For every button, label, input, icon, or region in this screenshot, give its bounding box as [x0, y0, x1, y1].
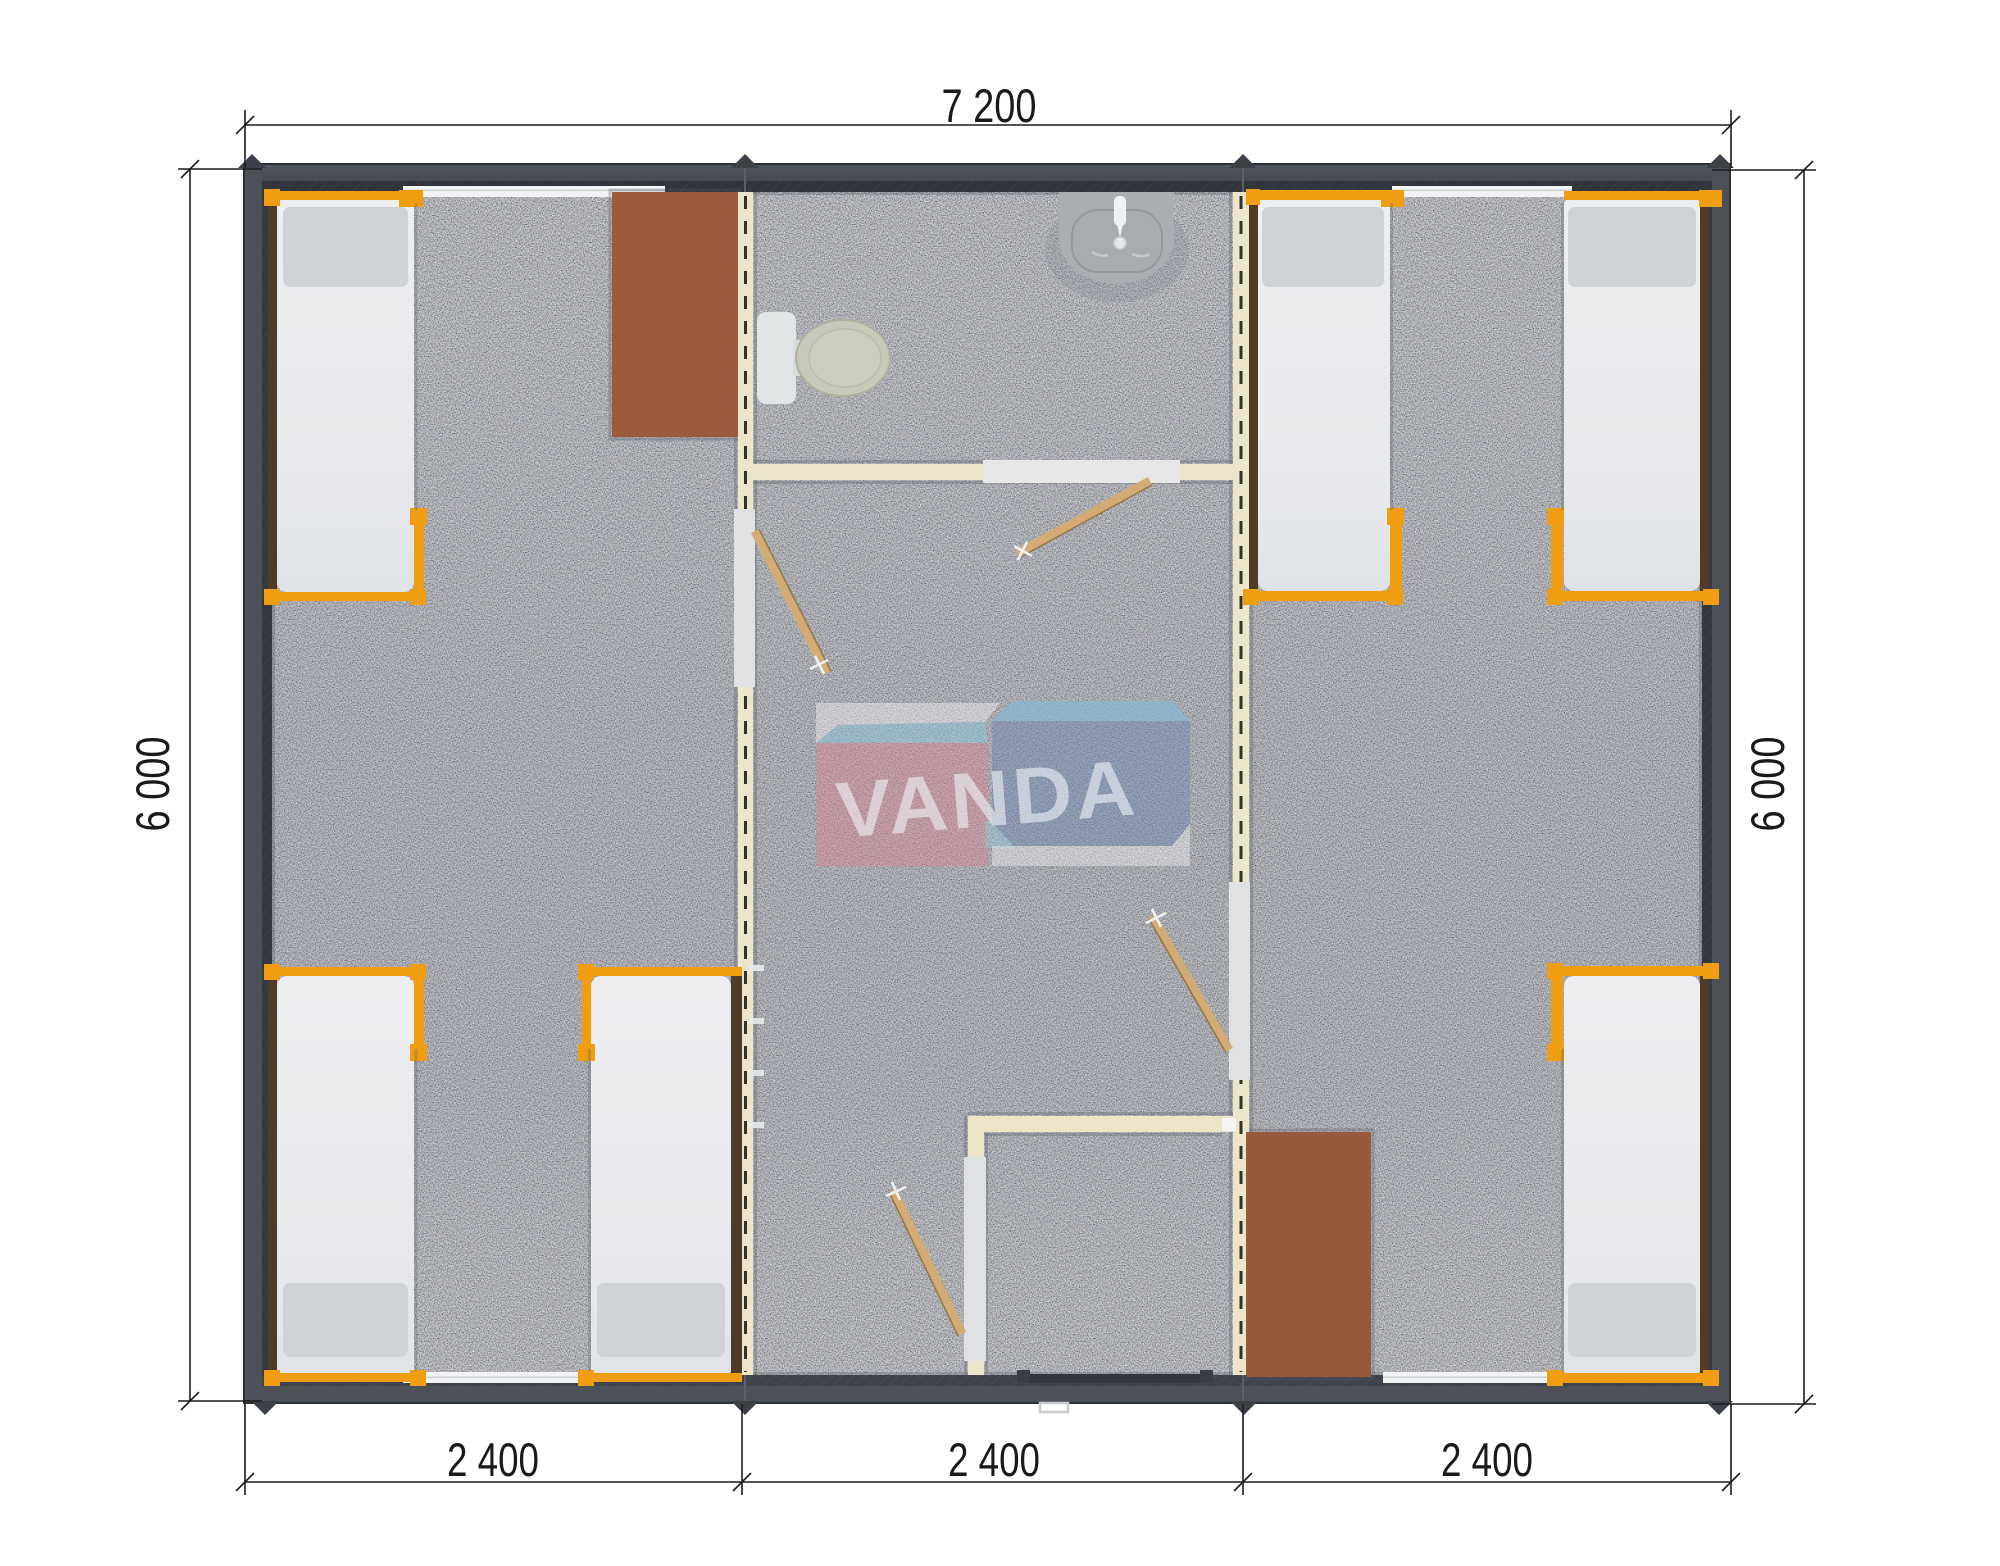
- svg-text:6 000: 6 000: [1741, 737, 1794, 832]
- svg-text:2 400: 2 400: [1441, 1433, 1533, 1486]
- svg-text:2 400: 2 400: [447, 1433, 539, 1486]
- svg-text:2 400: 2 400: [948, 1433, 1040, 1486]
- svg-text:6 000: 6 000: [126, 737, 179, 832]
- svg-text:7 200: 7 200: [942, 79, 1037, 132]
